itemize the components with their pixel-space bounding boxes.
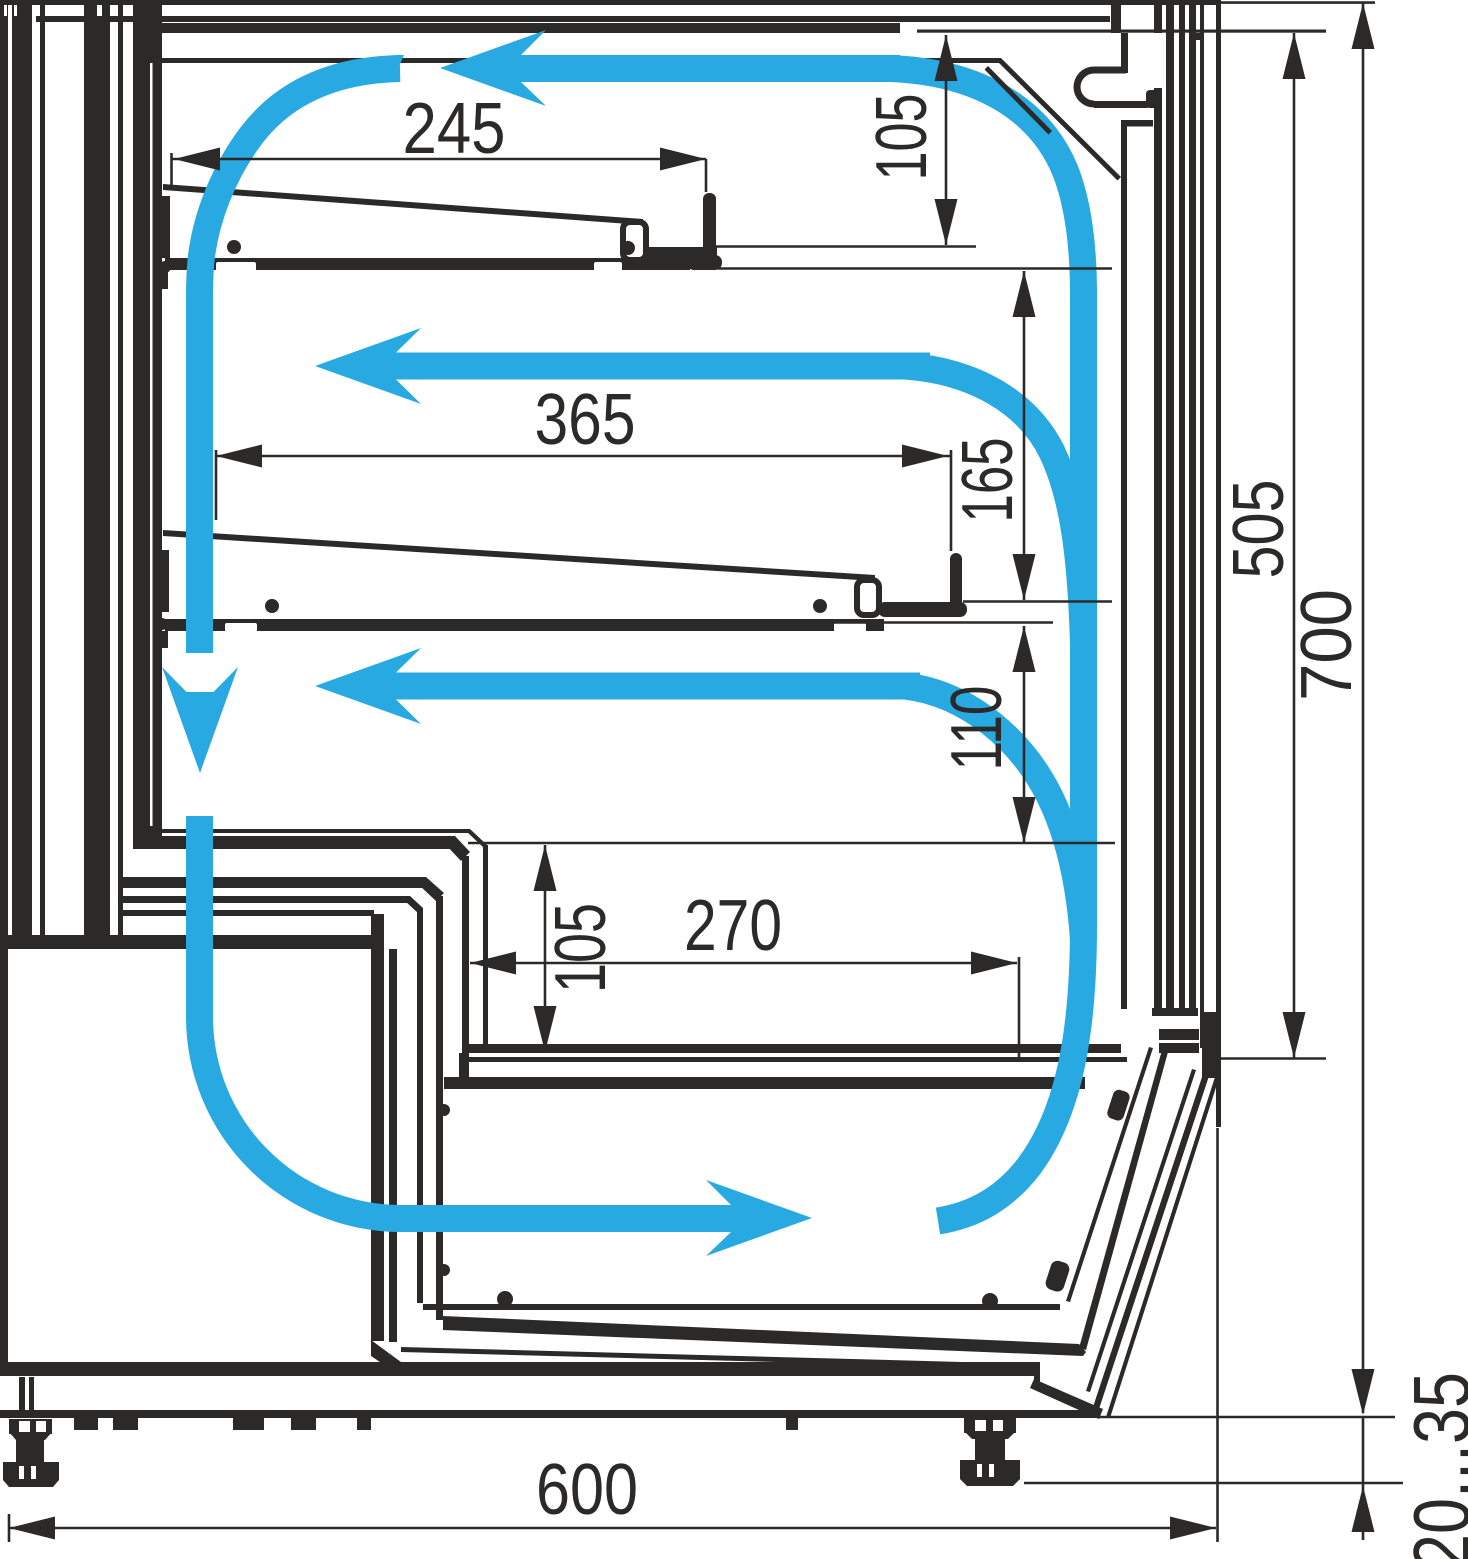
svg-text:165: 165 <box>948 438 1028 523</box>
svg-text:270: 270 <box>684 886 782 966</box>
svg-text:365: 365 <box>535 380 636 460</box>
svg-text:110: 110 <box>937 686 1017 771</box>
svg-text:20...35: 20...35 <box>1397 1372 1468 1559</box>
svg-text:505: 505 <box>1219 480 1299 579</box>
svg-text:245: 245 <box>403 89 506 169</box>
svg-text:700: 700 <box>1287 589 1367 701</box>
svg-text:600: 600 <box>536 1450 638 1530</box>
svg-text:105: 105 <box>862 94 942 181</box>
svg-text:105: 105 <box>541 903 621 993</box>
